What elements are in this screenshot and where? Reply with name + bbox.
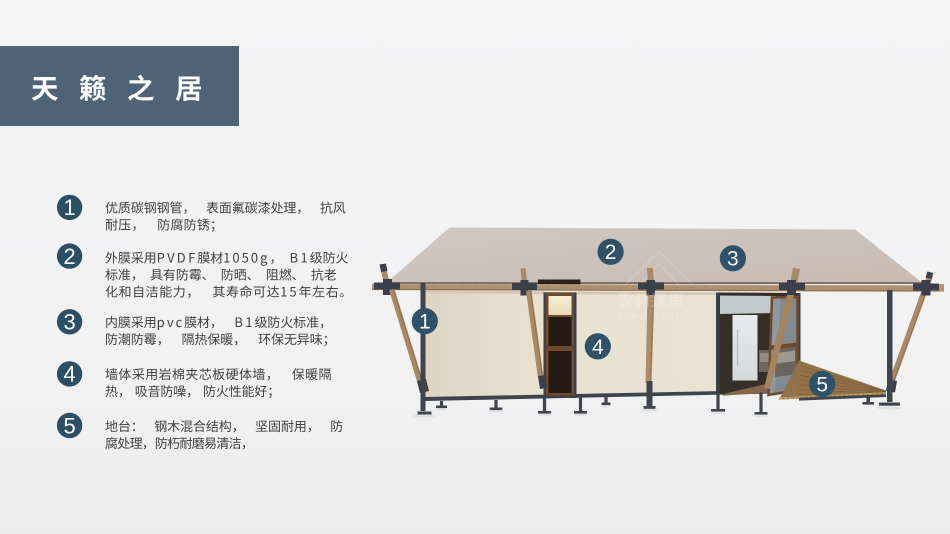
svg-text:XUELI TENT: XUELI TENT (617, 311, 682, 320)
svg-text:4: 4 (592, 336, 604, 359)
svg-text:1: 1 (63, 195, 75, 220)
svg-text:3: 3 (727, 248, 739, 271)
svg-text:2: 2 (605, 241, 617, 264)
svg-text:5: 5 (63, 413, 75, 438)
svg-text:2: 2 (63, 244, 75, 269)
svg-text:3: 3 (63, 310, 75, 335)
svg-text:1: 1 (419, 311, 431, 334)
svg-text:4: 4 (63, 362, 75, 387)
svg-text:5: 5 (816, 373, 828, 396)
